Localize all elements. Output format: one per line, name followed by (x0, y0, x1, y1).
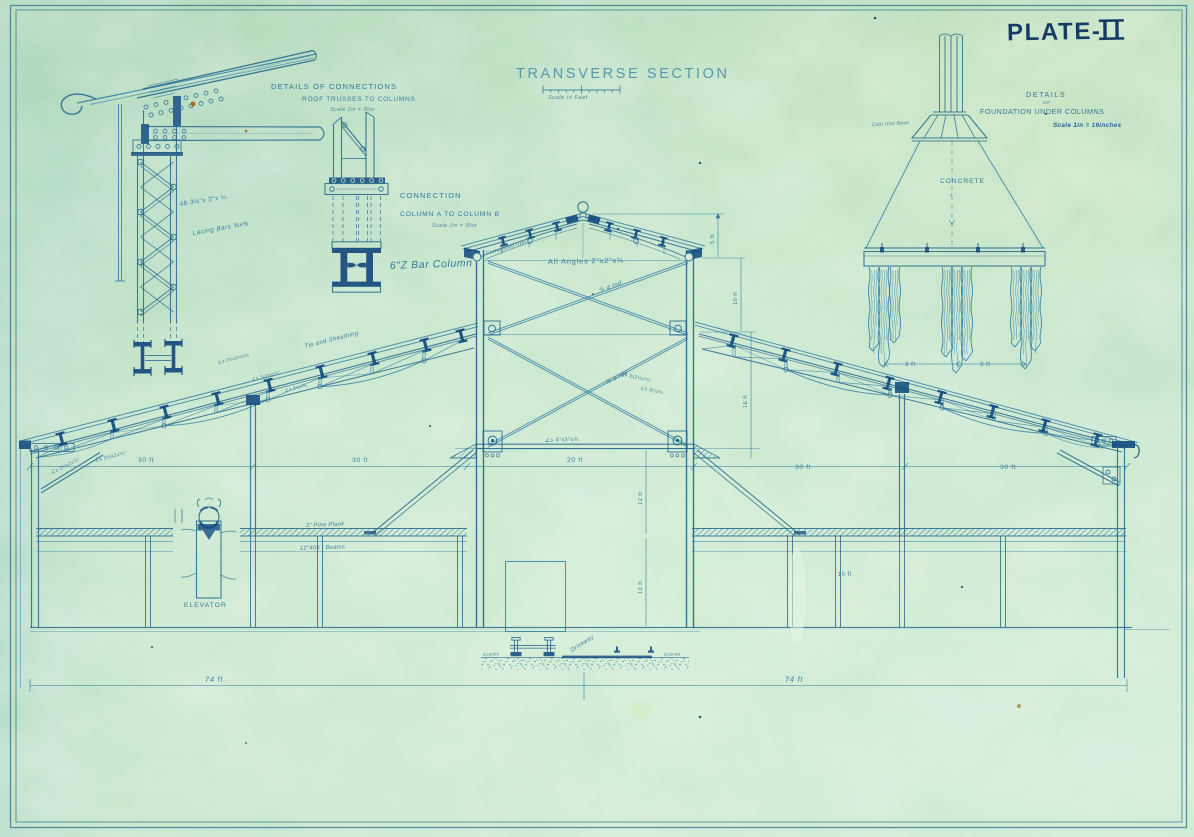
svg-text:5 ft: 5 ft (710, 234, 716, 244)
svg-text:3 ft: 3 ft (980, 361, 991, 368)
svg-text:Scale 1in = 30in: Scale 1in = 30in (432, 223, 477, 229)
svg-text:Granite: Granite (483, 651, 500, 657)
svg-text:Granite: Granite (664, 651, 681, 657)
svg-text:30 ft: 30 ft (795, 464, 811, 471)
svg-text:OF: OF (1043, 100, 1051, 106)
svg-text:30 ft: 30 ft (352, 457, 368, 464)
svg-text:30 ft: 30 ft (138, 457, 154, 464)
svg-text:12 ft: 12 ft (638, 492, 644, 505)
svg-text:ROOF TRUSSES TO COLUMNS: ROOF TRUSSES TO COLUMNS (302, 96, 416, 103)
svg-text:COLUMN A TO COLUMN B: COLUMN A TO COLUMN B (400, 211, 500, 218)
svg-text:74 ft: 74 ft (785, 675, 804, 684)
svg-text:Scale 1in = 30in: Scale 1in = 30in (330, 107, 375, 113)
svg-text:∠s 4"x3"x¾: ∠s 4"x3"x¾ (545, 436, 579, 444)
svg-text:TRANSVERSE SECTION: TRANSVERSE SECTION (516, 66, 730, 82)
svg-text:74 ft.: 74 ft. (205, 675, 226, 684)
svg-text:12 ft: 12 ft (638, 581, 644, 594)
svg-text:DETAILS: DETAILS (1026, 90, 1066, 99)
svg-text:PLATE-: PLATE- (1007, 18, 1102, 47)
svg-text:FOUNDATION UNDER COLUMNS: FOUNDATION UNDER COLUMNS (980, 107, 1104, 116)
svg-text:15 ft: 15 ft (838, 572, 852, 578)
svg-text:CONCRETE: CONCRETE (940, 178, 985, 185)
svg-text:Scale in Feet: Scale in Feet (548, 95, 588, 101)
svg-text:Scale 1in = 16inches: Scale 1in = 16inches (1053, 122, 1121, 129)
svg-text:CONNECTION: CONNECTION (400, 191, 462, 200)
svg-text:DETAILS OF CONNECTIONS: DETAILS OF CONNECTIONS (271, 82, 397, 91)
svg-text:3 ft: 3 ft (905, 361, 916, 368)
svg-text:16 ft: 16 ft (743, 395, 749, 408)
svg-text:30 ft: 30 ft (1000, 464, 1016, 471)
svg-text:ELEVATOR: ELEVATOR (184, 602, 227, 609)
svg-text:20 ft: 20 ft (567, 457, 583, 464)
svg-text:10 ft: 10 ft (733, 292, 739, 305)
